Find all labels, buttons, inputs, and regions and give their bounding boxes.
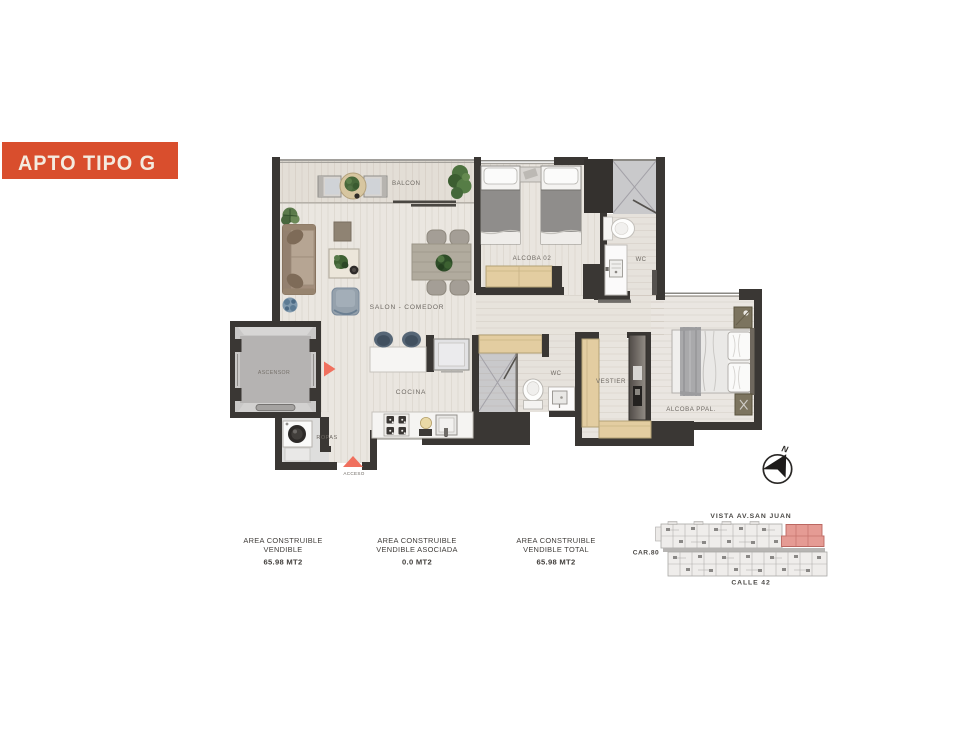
svg-text:65.98 MT2: 65.98 MT2 (263, 558, 302, 567)
svg-text:WC: WC (636, 257, 647, 263)
svg-text:65.98 MT2: 65.98 MT2 (536, 558, 575, 567)
svg-text:AREA CONSTRUIBLE: AREA CONSTRUIBLE (516, 536, 595, 545)
svg-text:AREA CONSTRUIBLE: AREA CONSTRUIBLE (243, 536, 322, 545)
svg-text:ACCESO: ACCESO (343, 471, 364, 476)
svg-text:ALCOBA 02: ALCOBA 02 (513, 255, 552, 262)
svg-text:VENDIBLE ASOCIADA: VENDIBLE ASOCIADA (376, 545, 458, 554)
svg-text:CAR.80: CAR.80 (633, 550, 659, 557)
svg-text:VENDIBLE TOTAL: VENDIBLE TOTAL (523, 545, 589, 554)
svg-text:VENDIBLE: VENDIBLE (264, 545, 303, 554)
svg-text:ALCOBA PPAL.: ALCOBA PPAL. (666, 406, 716, 413)
svg-text:ROPAS: ROPAS (316, 435, 337, 441)
svg-text:AREA CONSTRUIBLE: AREA CONSTRUIBLE (377, 536, 456, 545)
svg-text:BALCON: BALCON (392, 180, 420, 187)
svg-text:SALON - COMEDOR: SALON - COMEDOR (370, 304, 445, 311)
svg-text:WC: WC (551, 371, 562, 377)
svg-text:COCINA: COCINA (396, 389, 426, 396)
svg-text:APTO TIPO G: APTO TIPO G (18, 152, 156, 175)
svg-text:VESTIER: VESTIER (596, 378, 626, 385)
svg-text:ASCENSOR: ASCENSOR (258, 370, 290, 376)
svg-text:CALLE 42: CALLE 42 (731, 580, 770, 587)
svg-text:VISTA AV.SAN JUAN: VISTA AV.SAN JUAN (710, 513, 791, 520)
svg-text:0.0 MT2: 0.0 MT2 (402, 558, 432, 567)
